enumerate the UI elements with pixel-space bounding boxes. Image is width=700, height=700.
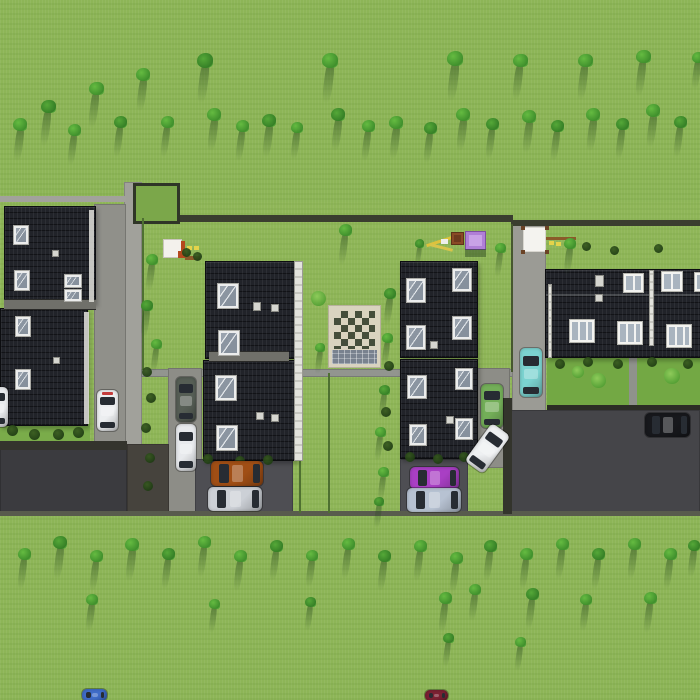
tree-shadow bbox=[580, 600, 590, 631]
left-building-gutter bbox=[84, 312, 89, 424]
tree-canopy bbox=[207, 108, 221, 121]
skylight-glass bbox=[16, 228, 26, 242]
tree bbox=[520, 548, 533, 587]
tree bbox=[484, 540, 497, 579]
tree bbox=[486, 118, 499, 157]
roof-skylight bbox=[15, 316, 31, 337]
wall-top-light bbox=[0, 196, 126, 202]
swing-seat bbox=[441, 239, 448, 244]
right-building-ridge bbox=[546, 294, 700, 296]
car-windshield bbox=[179, 432, 193, 441]
bush-light bbox=[311, 291, 326, 306]
roof-vent bbox=[253, 302, 261, 311]
tree bbox=[578, 54, 593, 99]
car-windshield bbox=[484, 391, 500, 400]
tree-canopy bbox=[616, 118, 629, 130]
tree-canopy bbox=[161, 116, 174, 128]
tree bbox=[270, 540, 283, 579]
car-rear-glass bbox=[523, 387, 539, 394]
skylight-glass bbox=[18, 319, 28, 334]
roof-skylight bbox=[218, 330, 240, 356]
skylight-glass bbox=[220, 286, 236, 306]
tree-canopy bbox=[141, 300, 153, 311]
skylight-glass bbox=[458, 421, 470, 437]
tree-canopy bbox=[339, 224, 352, 236]
tree bbox=[513, 54, 528, 99]
car-rear-glass bbox=[450, 470, 456, 486]
tree-canopy bbox=[443, 633, 454, 643]
bush bbox=[146, 393, 156, 403]
tree-canopy bbox=[628, 538, 641, 550]
roof-skylight bbox=[407, 375, 427, 399]
bush bbox=[143, 481, 153, 491]
tree bbox=[674, 116, 687, 155]
car-rear-glass bbox=[252, 490, 259, 508]
skylight-glass bbox=[18, 372, 28, 387]
tree bbox=[305, 597, 316, 630]
tree bbox=[636, 50, 651, 95]
tree bbox=[586, 108, 600, 150]
right-building-gable-strip bbox=[649, 270, 654, 346]
car-rear-glass bbox=[101, 692, 104, 698]
brick-wall-right-vertical bbox=[503, 398, 512, 514]
tree bbox=[322, 53, 338, 101]
car-black bbox=[645, 413, 690, 437]
bush bbox=[193, 252, 202, 261]
canopy-post-3 bbox=[521, 250, 525, 254]
car-windshield bbox=[416, 491, 426, 509]
roof-vent bbox=[271, 304, 279, 312]
wall-garden-right bbox=[547, 405, 700, 410]
bush bbox=[433, 454, 443, 464]
car-white-2 bbox=[176, 424, 196, 471]
skylight-glass bbox=[218, 378, 234, 398]
tree bbox=[18, 548, 31, 587]
tree bbox=[450, 552, 463, 591]
tree bbox=[161, 116, 174, 155]
tree-canopy bbox=[41, 100, 56, 114]
bush bbox=[7, 425, 18, 436]
yellow-seat-4 bbox=[556, 242, 561, 246]
bush bbox=[263, 455, 273, 465]
tree-shadow bbox=[692, 58, 700, 89]
tree-canopy bbox=[270, 540, 283, 552]
tree-canopy bbox=[331, 108, 345, 121]
tree bbox=[236, 120, 249, 159]
skylight-glass bbox=[455, 319, 469, 337]
tree-shadow bbox=[564, 244, 574, 275]
tree-canopy bbox=[362, 120, 375, 132]
tree bbox=[339, 224, 352, 263]
hedge-fence-4 bbox=[511, 224, 513, 372]
tree-canopy bbox=[146, 254, 158, 265]
window-glass bbox=[626, 276, 641, 290]
tree bbox=[13, 118, 27, 160]
tree bbox=[41, 100, 56, 145]
tree-canopy bbox=[674, 116, 687, 128]
tree-canopy bbox=[484, 540, 497, 552]
car-red-partial bbox=[425, 690, 448, 700]
tree-shadow bbox=[86, 600, 96, 631]
roof-vent bbox=[53, 357, 60, 364]
window-glass bbox=[664, 274, 680, 289]
tree bbox=[415, 239, 424, 266]
bush bbox=[53, 429, 64, 440]
tree bbox=[692, 52, 700, 88]
roof-vent bbox=[430, 341, 438, 349]
tree-canopy bbox=[136, 68, 150, 81]
tree-canopy bbox=[580, 594, 592, 605]
car-steel-blue bbox=[407, 488, 461, 512]
tree-canopy bbox=[53, 536, 67, 549]
car-windshield bbox=[418, 470, 427, 486]
tree-canopy bbox=[151, 339, 162, 349]
tree bbox=[378, 550, 391, 589]
tree-canopy bbox=[450, 552, 463, 564]
bush bbox=[405, 452, 415, 462]
tree-canopy bbox=[389, 116, 403, 129]
tree bbox=[114, 116, 127, 155]
enclosure-top bbox=[133, 183, 180, 224]
tree bbox=[90, 550, 103, 589]
tree-canopy bbox=[515, 637, 526, 647]
bush bbox=[583, 357, 593, 367]
tree-canopy bbox=[315, 343, 325, 352]
roof-skylight bbox=[13, 225, 29, 245]
tree bbox=[198, 536, 211, 575]
tree bbox=[495, 243, 506, 276]
tree bbox=[262, 114, 276, 156]
tree bbox=[384, 288, 396, 324]
bush-light bbox=[572, 366, 584, 378]
car-gray-green bbox=[176, 377, 196, 422]
car-tail-light bbox=[102, 392, 113, 395]
tree bbox=[209, 599, 220, 632]
car-white-edge bbox=[0, 387, 8, 427]
tree bbox=[515, 637, 526, 670]
tree-shadow bbox=[469, 590, 479, 621]
tree bbox=[136, 68, 150, 110]
car-roof-highlight bbox=[230, 491, 242, 507]
roof-skylight bbox=[452, 316, 472, 340]
tree-canopy bbox=[644, 592, 657, 604]
car-rear-glass bbox=[0, 418, 5, 424]
tree-canopy bbox=[513, 54, 528, 68]
tree bbox=[362, 120, 375, 159]
tree-canopy bbox=[664, 548, 677, 560]
tree bbox=[86, 594, 98, 630]
tree bbox=[628, 538, 641, 577]
car-roof-highlight bbox=[429, 492, 441, 508]
tree bbox=[551, 120, 564, 159]
tree bbox=[162, 548, 175, 587]
bush bbox=[29, 429, 40, 440]
car-roof-highlight bbox=[232, 465, 243, 482]
tree-canopy bbox=[90, 550, 103, 562]
car-orange bbox=[211, 461, 263, 486]
tree bbox=[234, 550, 247, 589]
tree-canopy bbox=[414, 540, 427, 552]
tree bbox=[646, 104, 660, 146]
bush bbox=[182, 248, 191, 257]
tree-canopy bbox=[469, 584, 481, 595]
patio-gray-band bbox=[332, 350, 377, 364]
roof-vent bbox=[256, 412, 264, 420]
car-roof-highlight bbox=[101, 407, 114, 416]
roof-skylight bbox=[15, 369, 31, 390]
tree bbox=[89, 82, 104, 127]
tree bbox=[592, 548, 605, 587]
tree-canopy bbox=[384, 288, 396, 299]
tree-canopy bbox=[379, 385, 390, 395]
tree bbox=[342, 538, 355, 577]
skylight-glass bbox=[412, 427, 424, 443]
tree-canopy bbox=[564, 238, 576, 249]
tree-shadow bbox=[384, 294, 394, 325]
car-green bbox=[481, 384, 503, 428]
tree-shadow bbox=[291, 128, 301, 159]
tree-canopy bbox=[86, 594, 98, 605]
tree-canopy bbox=[522, 110, 536, 123]
tree-canopy bbox=[306, 550, 318, 561]
tree-canopy bbox=[692, 52, 700, 63]
tree-shadow bbox=[688, 546, 698, 577]
asphalt-left bbox=[0, 449, 127, 514]
car-roof-highlight bbox=[180, 396, 192, 406]
window-glass bbox=[620, 324, 640, 342]
car-silver bbox=[208, 487, 262, 511]
trampoline-mat bbox=[469, 235, 482, 246]
tree-shadow bbox=[146, 260, 156, 291]
tree-canopy bbox=[209, 599, 220, 609]
tree-canopy bbox=[439, 592, 452, 604]
tree bbox=[644, 592, 657, 631]
yellow-seat-2 bbox=[194, 246, 199, 250]
tree-canopy bbox=[18, 548, 31, 560]
roof-skylight bbox=[452, 268, 472, 292]
skylight-glass bbox=[219, 428, 235, 448]
tree bbox=[688, 540, 700, 576]
patio-checkerboard bbox=[334, 311, 375, 349]
bush bbox=[610, 246, 619, 255]
tree bbox=[197, 53, 213, 101]
tree bbox=[53, 536, 67, 578]
tree-canopy bbox=[378, 550, 391, 562]
tree-canopy bbox=[197, 53, 213, 68]
tree bbox=[146, 254, 158, 290]
roof-skylight bbox=[64, 289, 82, 302]
roof-vent bbox=[446, 416, 454, 424]
tree-canopy bbox=[495, 243, 506, 253]
roof-skylight bbox=[409, 424, 427, 446]
skylight-glass bbox=[409, 281, 423, 300]
tree-canopy bbox=[556, 538, 569, 550]
car-purple bbox=[410, 467, 459, 489]
car-roof-highlight bbox=[524, 369, 538, 380]
bush bbox=[647, 357, 657, 367]
car-windshield bbox=[429, 693, 433, 698]
tree-canopy bbox=[262, 114, 276, 127]
car-cyan bbox=[520, 348, 542, 397]
bush bbox=[683, 359, 693, 369]
tree bbox=[382, 333, 393, 366]
car-roof-highlight bbox=[0, 404, 4, 413]
tree-canopy bbox=[114, 116, 127, 128]
tree bbox=[315, 343, 325, 373]
tree-canopy bbox=[162, 548, 175, 560]
yellow-seat-3 bbox=[549, 241, 554, 245]
tree-canopy bbox=[375, 427, 386, 437]
tree bbox=[374, 497, 384, 527]
left-building-gutter bbox=[89, 210, 94, 302]
roof-skylight bbox=[215, 375, 237, 401]
skylight-glass bbox=[458, 371, 470, 387]
bush bbox=[613, 359, 623, 369]
tree-canopy bbox=[382, 333, 393, 343]
wall-bottom bbox=[0, 511, 700, 516]
tree-canopy bbox=[13, 118, 27, 131]
canopy-white bbox=[523, 227, 546, 252]
car-blue-partial bbox=[82, 689, 107, 700]
tree-canopy bbox=[520, 548, 533, 560]
tree-canopy bbox=[378, 467, 389, 477]
tree bbox=[580, 594, 592, 630]
roof-skylight bbox=[406, 278, 426, 303]
tree-canopy bbox=[89, 82, 104, 96]
bush bbox=[555, 359, 565, 369]
car-windshield bbox=[86, 692, 91, 698]
car-roof-highlight bbox=[430, 471, 441, 485]
tree-canopy bbox=[342, 538, 355, 550]
tree-canopy bbox=[646, 104, 660, 117]
car-windshield bbox=[217, 490, 227, 508]
tree bbox=[141, 300, 153, 336]
tree bbox=[443, 633, 454, 666]
tree-canopy bbox=[424, 122, 437, 134]
bush-light bbox=[664, 368, 680, 384]
car-rear-glass bbox=[179, 413, 193, 419]
skylight-glass bbox=[67, 292, 79, 299]
tree bbox=[456, 108, 470, 150]
dormer-window bbox=[569, 319, 595, 343]
tree-canopy bbox=[322, 53, 338, 68]
right-building-gable-strip bbox=[548, 284, 552, 358]
bush bbox=[141, 423, 151, 433]
canopy-post-2 bbox=[545, 226, 549, 230]
tree-canopy bbox=[636, 50, 651, 64]
tree-canopy bbox=[551, 120, 564, 132]
tree-shadow bbox=[141, 306, 151, 337]
tree-canopy bbox=[415, 239, 424, 247]
tree bbox=[414, 540, 427, 579]
tree-canopy bbox=[68, 124, 81, 136]
car-rear-glass bbox=[179, 461, 193, 468]
roof-skylight bbox=[64, 274, 82, 288]
car-windshield bbox=[100, 397, 115, 405]
tree bbox=[291, 122, 303, 158]
tree-canopy bbox=[592, 548, 605, 560]
bush bbox=[73, 427, 84, 438]
tree bbox=[424, 122, 437, 161]
tree-canopy bbox=[374, 497, 384, 506]
car-white-hatch bbox=[97, 390, 118, 431]
dormer-window bbox=[666, 324, 692, 348]
tree bbox=[151, 339, 162, 372]
tree bbox=[207, 108, 221, 150]
car-windshield bbox=[523, 356, 539, 366]
tree-shadow bbox=[306, 556, 316, 587]
canopy-post-1 bbox=[521, 226, 525, 230]
tree-canopy bbox=[198, 536, 211, 548]
car-windshield bbox=[219, 464, 228, 483]
dormer-window bbox=[617, 321, 643, 345]
tree-canopy bbox=[456, 108, 470, 121]
patio-terrace bbox=[328, 305, 381, 368]
skylight-glass bbox=[410, 378, 424, 396]
tree bbox=[125, 538, 139, 580]
car-rear-glass bbox=[681, 416, 687, 434]
tree bbox=[564, 238, 576, 274]
brick-wall-left bbox=[0, 441, 127, 450]
tree bbox=[556, 538, 569, 577]
car-rear-glass bbox=[451, 491, 458, 509]
left-building-roof bbox=[0, 308, 88, 426]
garden-path-right bbox=[629, 352, 637, 409]
skylight-glass bbox=[67, 277, 79, 285]
tree bbox=[664, 548, 677, 587]
tree-canopy bbox=[291, 122, 303, 133]
dormer-window bbox=[623, 273, 644, 293]
tree bbox=[389, 116, 403, 158]
wall-top-dark-right bbox=[511, 220, 700, 226]
wall-top-dark bbox=[133, 215, 513, 222]
car-windshield bbox=[652, 416, 660, 434]
tree-canopy bbox=[125, 538, 139, 551]
window-glass bbox=[669, 327, 689, 345]
roof-vent bbox=[595, 275, 604, 287]
car-rear-glass bbox=[100, 422, 115, 428]
skylight-glass bbox=[455, 271, 469, 289]
tree bbox=[378, 467, 389, 500]
tree bbox=[331, 108, 345, 150]
tree bbox=[526, 588, 539, 627]
hedge-fence-3 bbox=[142, 218, 144, 370]
car-windshield bbox=[0, 393, 5, 401]
bush bbox=[654, 244, 663, 253]
dormer-window bbox=[694, 272, 700, 292]
bush-light bbox=[591, 373, 606, 388]
tree bbox=[68, 124, 81, 163]
roof-skylight bbox=[217, 283, 239, 309]
skylight-glass bbox=[409, 328, 423, 347]
tree-canopy bbox=[234, 550, 247, 562]
bush bbox=[145, 453, 155, 463]
trampoline-shadow bbox=[465, 249, 486, 257]
tree bbox=[375, 427, 386, 460]
tree-canopy bbox=[447, 51, 463, 66]
tree-canopy bbox=[688, 540, 700, 551]
roof-skylight bbox=[216, 425, 238, 451]
tree-canopy bbox=[578, 54, 593, 68]
car-rear-glass bbox=[442, 693, 445, 698]
roof-vent bbox=[595, 294, 603, 302]
tree-canopy bbox=[486, 118, 499, 130]
roof-vent bbox=[271, 414, 279, 422]
dormer-window bbox=[661, 271, 683, 292]
window-glass bbox=[572, 322, 592, 340]
roof-skylight bbox=[455, 368, 473, 390]
hedge-fence-2 bbox=[328, 373, 330, 513]
